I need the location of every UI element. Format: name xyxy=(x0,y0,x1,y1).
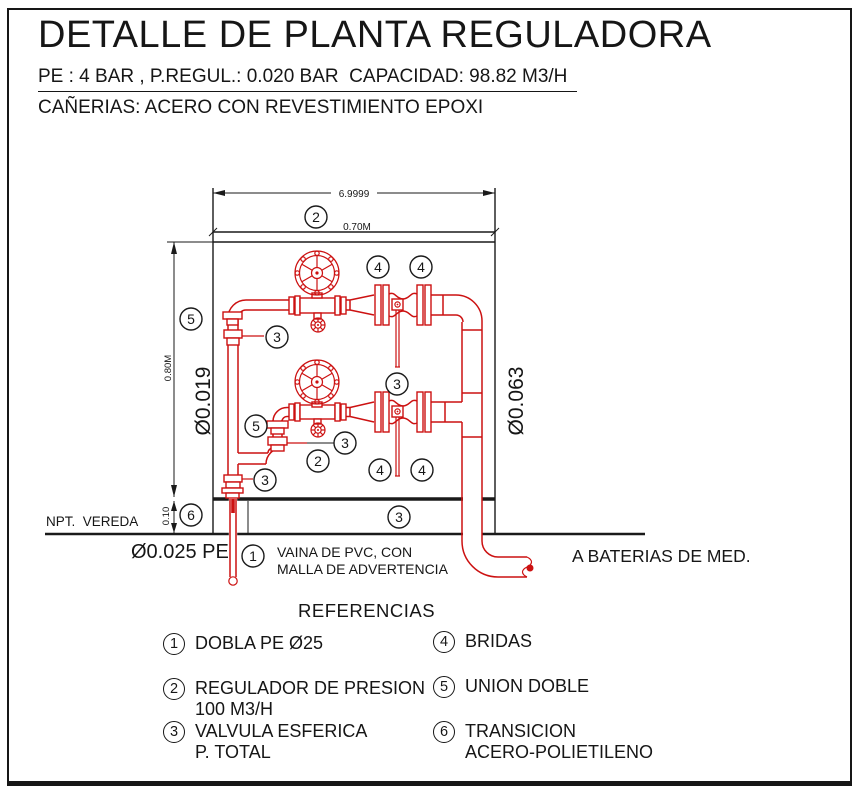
inner-height-label: 0.80M xyxy=(163,355,174,381)
references-heading: REFERENCIAS xyxy=(298,600,435,622)
outlet-destination-label: A BATERIAS DE MED. xyxy=(572,546,751,567)
upper-reducer-cone xyxy=(350,295,374,315)
reference-badge-4: 4 xyxy=(433,631,455,653)
callout-flange-lower-left: 4 xyxy=(369,459,391,481)
enclosure-walls xyxy=(209,188,499,533)
reference-item-4: 4 BRIDAS xyxy=(433,631,532,653)
upper-sensing-stem xyxy=(392,299,403,367)
outlet-diameter-label: Ø0.063 xyxy=(505,367,528,436)
callout-balloons: 2 4 4 5 3 3 5 3 2 4 4 3 6 3 1 xyxy=(180,206,433,567)
reference-item-1: 1 DOBLA PE Ø25 xyxy=(163,633,323,655)
upper-regulator-handwheel xyxy=(295,251,339,298)
branch-union xyxy=(267,421,288,434)
callout-regulator-top: 2 xyxy=(305,206,327,228)
regulator-body-top xyxy=(389,293,417,299)
lower-flange-pair-right xyxy=(417,392,431,432)
svg-text:3: 3 xyxy=(341,435,349,451)
reference-badge-2: 2 xyxy=(163,678,185,700)
reference-label: REGULADOR DE PRESION xyxy=(195,678,425,699)
callout-union-lower: 5 xyxy=(245,415,267,437)
svg-text:1: 1 xyxy=(249,548,257,564)
slab-thickness-label: 0.10 xyxy=(161,507,172,526)
piping-upper-train xyxy=(228,251,482,367)
dimension-slab: 0.10 xyxy=(161,501,177,533)
svg-text:4: 4 xyxy=(374,259,382,275)
upper-flange-pair-left xyxy=(375,285,389,325)
callout-union-upper: 5 xyxy=(180,308,202,330)
lower-reducer-cone xyxy=(350,402,374,422)
inlet-diameter-label: Ø0.019 xyxy=(192,367,215,436)
svg-text:2: 2 xyxy=(314,453,322,469)
reference-item-3: 3 VALVULA ESFERICA P. TOTAL xyxy=(163,721,367,763)
reference-badge-6: 6 xyxy=(433,721,455,743)
drawing-sheet: DETALLE DE PLANTA REGULADORA PE : 4 BAR … xyxy=(0,0,856,795)
reference-item-2: 2 REGULADOR DE PRESION 100 M3/H xyxy=(163,678,425,720)
branch-ball-valve xyxy=(268,437,334,451)
callout-stem-upper: 3 xyxy=(386,373,408,395)
upper-valve-body xyxy=(289,296,346,315)
lower-regulator-handwheel xyxy=(295,360,339,407)
overall-width-label: 6.9999 xyxy=(339,189,370,200)
reference-badge-3: 3 xyxy=(163,721,185,743)
upper-purge-valve xyxy=(311,313,325,332)
callout-valve-branch: 3 xyxy=(334,432,356,454)
reference-label: VALVULA ESFERICA xyxy=(195,721,367,742)
lower-purge-valve xyxy=(311,419,325,437)
callout-valve-upper: 3 xyxy=(266,326,288,348)
callout-flange-upper-left: 4 xyxy=(367,256,389,278)
dimension-overall-width: 6.9999 0.70M xyxy=(213,186,495,233)
steel-pe-transition xyxy=(222,488,243,498)
callout-flange-upper-right: 4 xyxy=(410,256,432,278)
inlet-ball-valve-upper xyxy=(224,330,264,345)
ground-level-label: NPT. VEREDA xyxy=(46,514,138,529)
callout-flange-lower-right: 4 xyxy=(411,459,433,481)
reference-badge-5: 5 xyxy=(433,676,455,698)
callout-pe-bend: 1 xyxy=(242,545,264,567)
callout-slab-valve: 3 xyxy=(388,506,410,528)
svg-text:3: 3 xyxy=(395,509,403,525)
reference-item-5: 5 UNION DOBLE xyxy=(433,676,589,698)
reference-label: P. TOTAL xyxy=(195,742,367,763)
reference-label: ACERO-POLIETILENO xyxy=(465,742,653,763)
inlet-ball-valve-lower xyxy=(224,475,253,488)
svg-text:2: 2 xyxy=(312,209,320,225)
inlet-union-upper xyxy=(223,312,242,325)
piping-lower-train xyxy=(238,360,462,476)
svg-text:3: 3 xyxy=(261,472,269,488)
buried-pipe-label: Ø0.025 PE xyxy=(131,541,229,564)
reference-label: DOBLA PE Ø25 xyxy=(195,633,323,654)
svg-text:6: 6 xyxy=(187,507,195,523)
svg-text:3: 3 xyxy=(393,376,401,392)
plant-plan-drawing: 6.9999 0.70M 0.80M 0.10 Ø0.019 Ø0.063 xyxy=(0,0,856,795)
lower-flange-pair-left xyxy=(375,392,389,432)
svg-text:4: 4 xyxy=(417,259,425,275)
reference-label: UNION DOBLE xyxy=(465,676,589,697)
svg-text:5: 5 xyxy=(252,418,260,434)
svg-text:4: 4 xyxy=(418,462,426,478)
callout-transition: 6 xyxy=(180,504,202,526)
sleeve-note-line2: MALLA DE ADVERTENCIA xyxy=(277,561,448,577)
piping-inlet-riser xyxy=(222,312,264,498)
svg-text:5: 5 xyxy=(187,311,195,327)
callout-valve-riser: 3 xyxy=(254,469,276,491)
reference-badge-1: 1 xyxy=(163,633,185,655)
svg-text:3: 3 xyxy=(273,329,281,345)
reference-item-6: 6 TRANSICION ACERO-POLIETILENO xyxy=(433,721,653,763)
regulator-body-bottom xyxy=(389,311,417,317)
reference-label: 100 M3/H xyxy=(195,699,425,720)
reference-label: BRIDAS xyxy=(465,631,532,652)
callout-regulator-lower: 2 xyxy=(307,450,329,472)
svg-text:4: 4 xyxy=(376,462,384,478)
upper-flange-pair-right xyxy=(417,285,431,325)
lower-sensing-stem xyxy=(392,406,403,476)
reference-label: TRANSICION xyxy=(465,721,653,742)
sleeve-note-line1: VAINA DE PVC, CON xyxy=(277,544,412,560)
inner-width-label: 0.70M xyxy=(343,222,371,233)
